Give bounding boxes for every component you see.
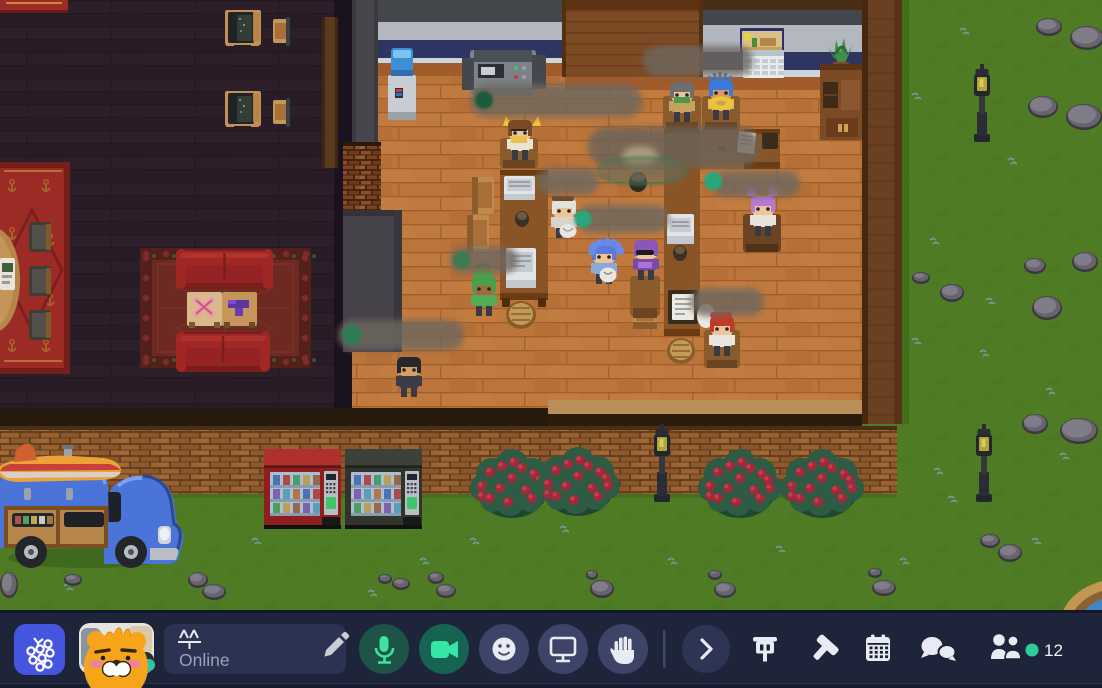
svg-text:Online: Online bbox=[179, 650, 230, 670]
svg-text:12: 12 bbox=[1044, 641, 1063, 660]
